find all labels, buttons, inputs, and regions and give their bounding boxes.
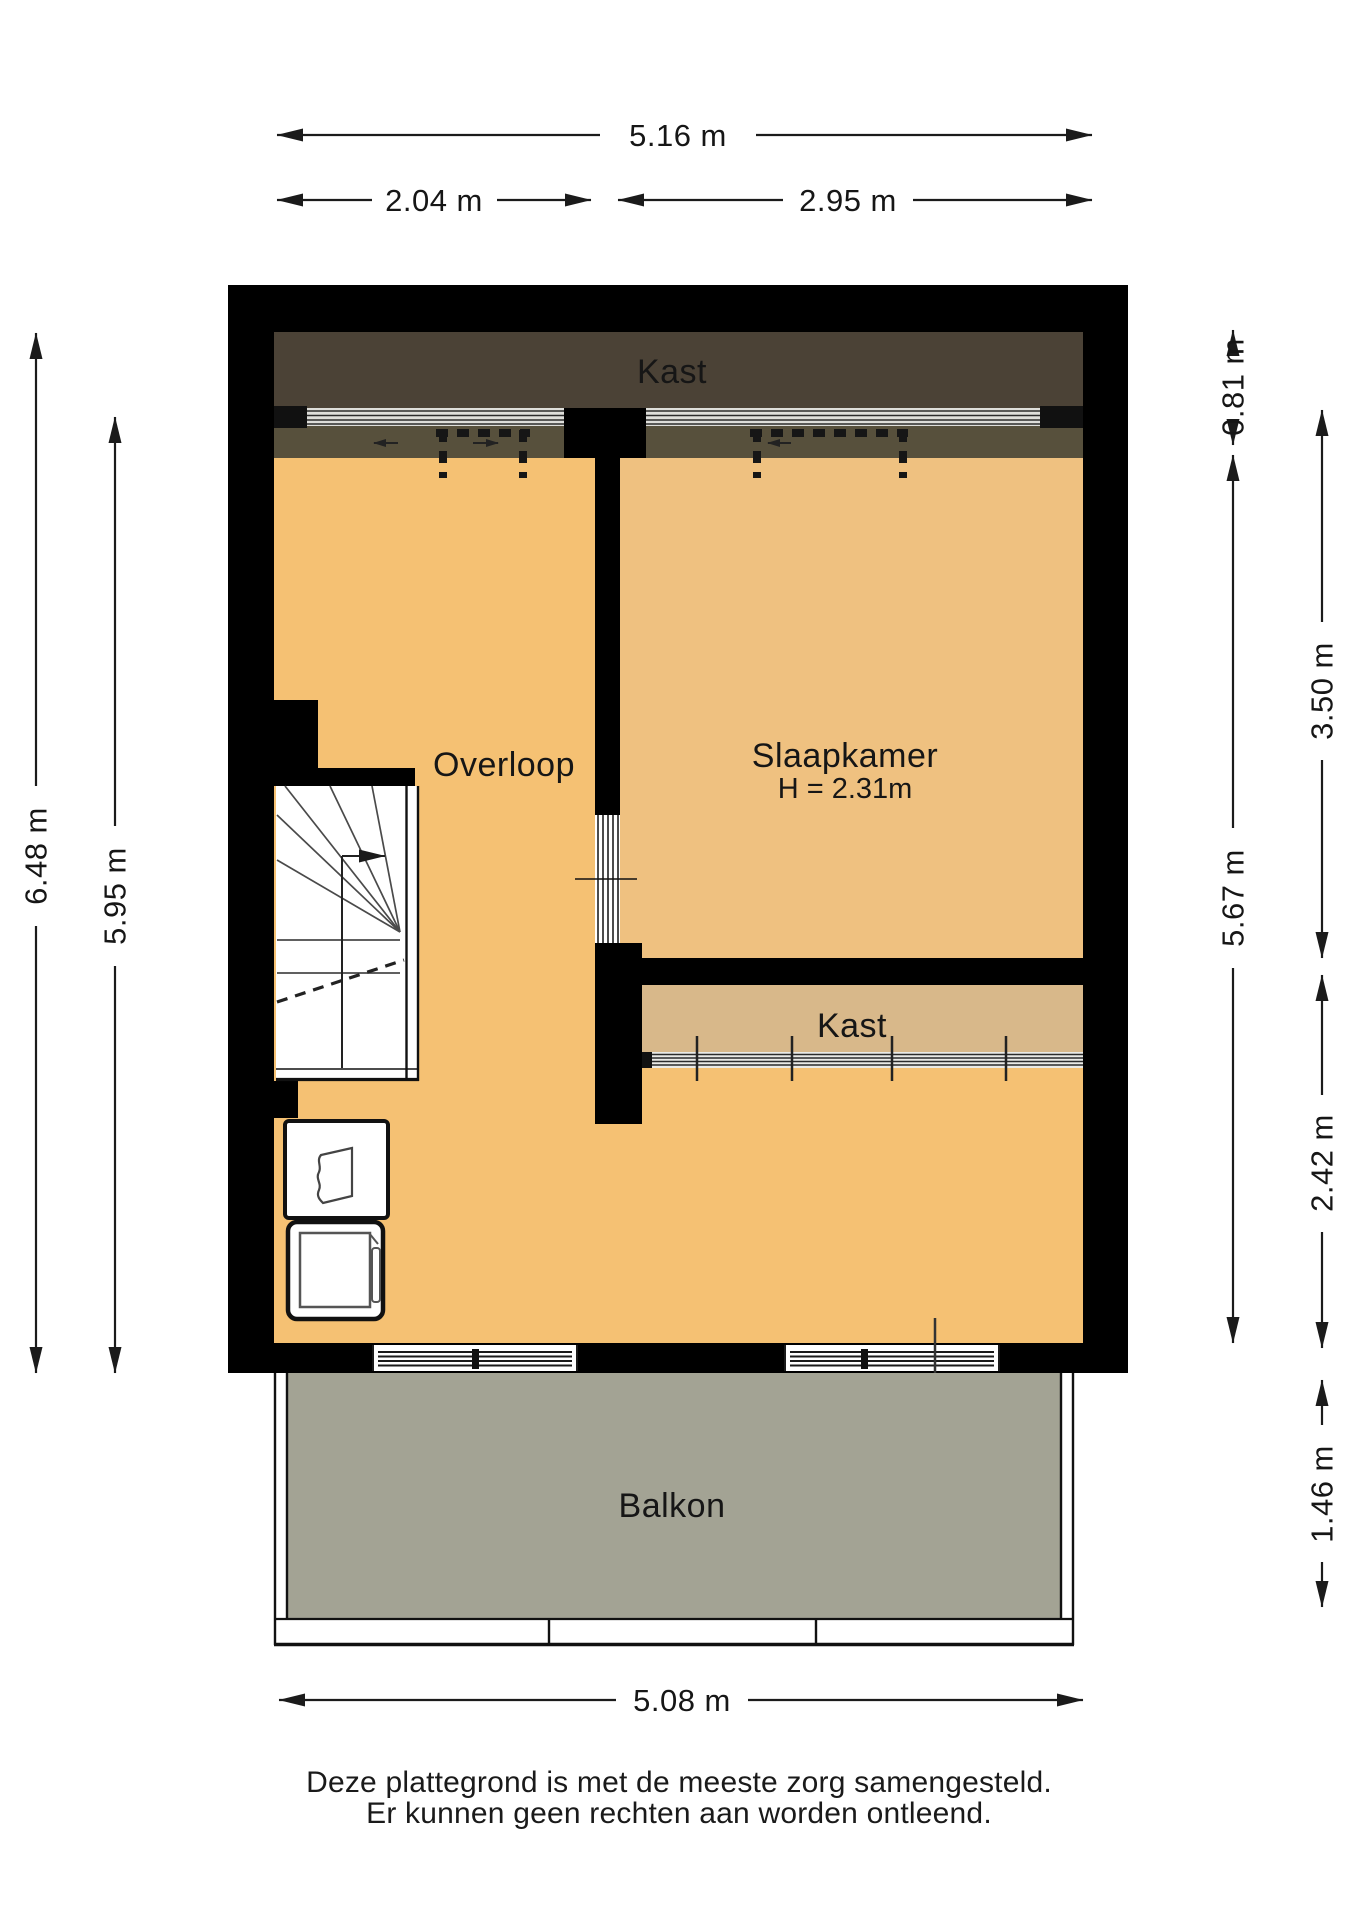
dim-label-right-inner: 5.67 m <box>1216 849 1251 947</box>
dim-label-top-right: 2.95 m <box>799 183 897 218</box>
room-label-overloop: Overloop <box>433 746 575 784</box>
disclaimer-line-1: Deze plattegrond is met de meeste zorg s… <box>0 1766 1358 1800</box>
dim-label-left-outer: 6.48 m <box>19 807 54 905</box>
disclaimer-line-2: Er kunnen geen rechten aan worden ontlee… <box>0 1797 1358 1831</box>
room-label-slaapkamer: Slaapkamer <box>752 737 938 775</box>
boiler-icon <box>285 1121 388 1218</box>
room-label-balkon: Balkon <box>619 1487 726 1525</box>
room-label-slaapkamer-height: H = 2.31m <box>778 773 913 805</box>
floor-plan: 5.16 m 2.04 m 2.95 m 6.48 m 5.95 m 0.81 … <box>0 0 1358 1920</box>
room-label-kast-top: Kast <box>637 353 707 391</box>
sliding-door-rail-top <box>274 406 1083 428</box>
washing-machine-icon <box>288 1222 383 1319</box>
window-2 <box>785 1345 999 1371</box>
dim-label-right-balcony: 1.46 m <box>1305 1445 1340 1543</box>
dim-label-bottom-total: 5.08 m <box>633 1683 731 1718</box>
room-label-kast-mid: Kast <box>817 1007 887 1045</box>
dim-label-top-left: 2.04 m <box>385 183 483 218</box>
dim-label-top-total: 5.16 m <box>629 118 727 153</box>
dim-label-right-top: 0.81 m <box>1216 338 1251 436</box>
dim-label-left-inner: 5.95 m <box>98 847 133 945</box>
floor-slaapkamer <box>620 458 1083 958</box>
floor-plan-page: 5.16 m 2.04 m 2.95 m 6.48 m 5.95 m 0.81 … <box>0 0 1358 1920</box>
dim-label-right-lower: 2.42 m <box>1305 1114 1340 1212</box>
window-1 <box>373 1345 577 1371</box>
stairs-icon <box>276 786 419 1081</box>
dim-label-right-upper: 3.50 m <box>1305 642 1340 740</box>
